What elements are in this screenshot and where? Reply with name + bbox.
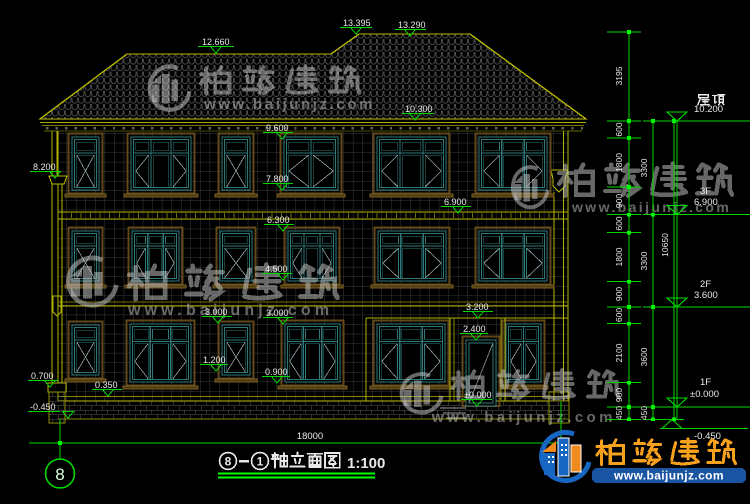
svg-text:7.800: 7.800: [266, 174, 289, 184]
svg-text:12.660: 12.660: [202, 37, 230, 47]
svg-text:900: 900: [614, 194, 624, 208]
svg-text:600: 600: [614, 122, 624, 136]
svg-text:4.500: 4.500: [265, 264, 288, 274]
svg-text:3600: 3600: [639, 347, 649, 366]
svg-text:8: 8: [55, 465, 64, 484]
svg-text:3195: 3195: [614, 66, 624, 85]
svg-text:10650: 10650: [660, 233, 670, 257]
svg-text:2F: 2F: [700, 279, 711, 290]
svg-text:3F: 3F: [700, 186, 711, 197]
svg-text:1: 1: [257, 455, 264, 469]
svg-text:1800: 1800: [614, 153, 624, 172]
svg-text:1800: 1800: [614, 247, 624, 266]
svg-text:18000: 18000: [297, 431, 323, 442]
svg-text:8: 8: [225, 455, 232, 469]
svg-text:-0.450: -0.450: [694, 431, 721, 442]
svg-text:±0.000: ±0.000: [464, 390, 491, 400]
svg-text:-0.450: -0.450: [30, 402, 56, 412]
svg-text:±0.000: ±0.000: [690, 389, 719, 400]
svg-text:450: 450: [639, 406, 649, 420]
svg-text:3.600: 3.600: [694, 290, 718, 301]
svg-text:3.000: 3.000: [266, 308, 289, 318]
svg-text:600: 600: [614, 308, 624, 322]
svg-text:www.baijunjz.com: www.baijunjz.com: [431, 409, 616, 426]
svg-text:3.000: 3.000: [205, 307, 228, 317]
svg-text:3.200: 3.200: [466, 302, 489, 312]
svg-text:13.395: 13.395: [343, 18, 371, 28]
svg-text:900: 900: [614, 287, 624, 301]
svg-text:3300: 3300: [639, 158, 649, 177]
svg-text:1.200: 1.200: [203, 355, 226, 365]
svg-text:10.300: 10.300: [405, 104, 433, 114]
svg-text:3300: 3300: [639, 251, 649, 270]
svg-text:9.600: 9.600: [266, 123, 289, 133]
svg-text:www.baijunjz.com: www.baijunjz.com: [613, 469, 724, 483]
svg-text:13.290: 13.290: [398, 20, 426, 30]
svg-text:0.700: 0.700: [31, 371, 54, 381]
svg-text:600: 600: [614, 216, 624, 230]
svg-text:6.300: 6.300: [267, 215, 290, 225]
svg-text:2.400: 2.400: [463, 324, 486, 334]
svg-text:8.200: 8.200: [33, 162, 56, 172]
svg-text:6.900: 6.900: [694, 197, 718, 208]
svg-text:900: 900: [614, 388, 624, 402]
svg-text:6.900: 6.900: [444, 197, 467, 207]
svg-text:1:100: 1:100: [347, 455, 385, 472]
svg-text:1F: 1F: [700, 377, 711, 388]
svg-text:0.350: 0.350: [95, 380, 118, 390]
svg-text:10.200: 10.200: [694, 104, 723, 115]
svg-text:450: 450: [614, 406, 624, 420]
svg-text:0.900: 0.900: [265, 367, 288, 377]
svg-text:www.baijunjz.com: www.baijunjz.com: [203, 96, 375, 113]
svg-text:2100: 2100: [614, 343, 624, 362]
